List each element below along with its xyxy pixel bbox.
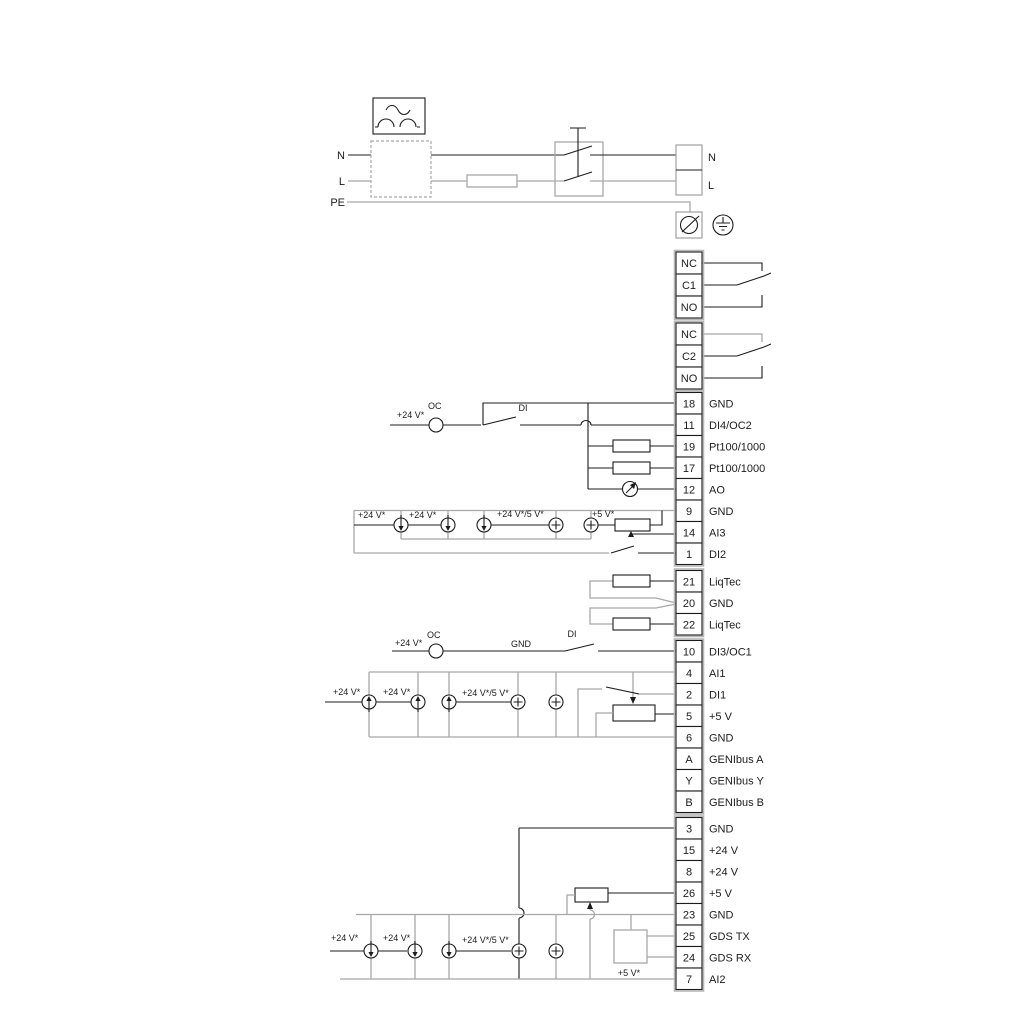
terminal-strip-c: 10DI3/OC14AI12DI15+5 V6GNDAGENIbus AYGEN… xyxy=(675,639,765,814)
terminal-pin: 19 xyxy=(683,441,695,453)
terminal-pin: 21 xyxy=(683,576,695,588)
ac-supply-icon xyxy=(373,98,425,134)
terminal-strip-d: 3GND15+24 V8+24 V26+5 V23GND25GDS TX24GD… xyxy=(675,816,752,991)
terminal-label: DI4/OC2 xyxy=(709,420,752,432)
potentiometer xyxy=(613,705,655,721)
oc-source-icon xyxy=(429,644,443,658)
annotation-24v: +24 V* xyxy=(333,687,361,697)
resistor-liqtec-2 xyxy=(613,618,650,630)
relay-cell-label: C2 xyxy=(682,351,696,363)
terminal-pin: 12 xyxy=(683,484,695,496)
relay2-no-wire xyxy=(702,366,762,378)
relay-block: NCC2NO xyxy=(675,322,704,391)
relay1-contact xyxy=(702,273,771,285)
label-n-left: N xyxy=(337,150,345,162)
label-pe-left: PE xyxy=(330,197,345,209)
terminal-pin: 25 xyxy=(683,931,695,943)
terminal-pin: 5 xyxy=(686,711,692,723)
annotation-24v: +24 V* xyxy=(409,510,437,520)
terminal-pin: 9 xyxy=(686,506,692,518)
terminal-label: DI2 xyxy=(709,549,726,561)
terminal-pin: 22 xyxy=(683,619,695,631)
relay2-contact xyxy=(702,344,771,356)
terminal-label: +24 V xyxy=(709,845,739,857)
relay1-no-wire xyxy=(702,295,762,307)
terminal-label: AI3 xyxy=(709,527,726,539)
terminal-pin: 26 xyxy=(683,888,695,900)
pot-wiper-drop xyxy=(590,908,595,979)
pot-to-gnd xyxy=(596,713,613,737)
di2-switch xyxy=(611,546,676,553)
annotation-24v: +24 V* xyxy=(395,638,423,648)
terminal-label: +5 V xyxy=(709,888,733,900)
terminal-pin: 24 xyxy=(683,952,695,964)
relay-wires xyxy=(702,263,771,378)
motif-d-verticals xyxy=(371,915,556,980)
relay-cell-label: NO xyxy=(681,373,698,385)
section-d-wires: +5 V* +24 V* +24 V* +24 V*/5 V* xyxy=(330,828,676,979)
terminal-strip-b: 21LiqTec20GND22LiqTec xyxy=(675,569,742,637)
terminal-label: GENIbus Y xyxy=(709,775,764,787)
section-b-wires xyxy=(590,575,676,630)
annotation-di: DI xyxy=(568,629,577,639)
di4-wire xyxy=(520,421,676,426)
oc-source-icon xyxy=(429,418,443,432)
terminal-pin: 15 xyxy=(683,845,695,857)
annotation-24v: +24 V* xyxy=(397,410,425,420)
terminal-label: +5 V xyxy=(709,711,733,723)
relay-cell-label: C1 xyxy=(682,280,696,292)
section-c-wires: +24 V* OC GND DI +24 V* +24 V* +24 V*/5 … xyxy=(325,629,676,737)
annotation-di: DI xyxy=(519,403,528,413)
terminal-pin: 11 xyxy=(683,420,694,432)
pot-left-leg xyxy=(567,895,575,915)
label-l-right: L xyxy=(708,180,714,192)
terminal-pin: Y xyxy=(685,775,693,787)
relay-cell-label: NC xyxy=(681,329,697,341)
annotation-5v: +5 V* xyxy=(618,968,641,978)
resistor-pt100-1 xyxy=(613,440,650,452)
terminal-pin: 4 xyxy=(686,668,692,680)
terminal-pin: 23 xyxy=(683,909,695,921)
relay1-nc-wire xyxy=(702,263,762,271)
terminal-pin: 17 xyxy=(683,463,695,475)
resistor-liqtec-1 xyxy=(613,575,650,587)
label-l-left: L xyxy=(339,176,345,188)
pot-to-gnd xyxy=(650,511,662,526)
di3-switch xyxy=(565,644,676,651)
terminal-label: AO xyxy=(709,484,725,496)
terminal-label: +24 V xyxy=(709,866,739,878)
terminal-pin: 10 xyxy=(683,646,695,658)
terminal-pin: A xyxy=(685,754,693,766)
annotation-oc: OC xyxy=(428,401,442,411)
terminal-pin: 7 xyxy=(686,974,692,986)
terminal-label: Pt100/1000 xyxy=(709,463,765,475)
terminal-label: LiqTec xyxy=(709,619,741,631)
annotation-gnd: GND xyxy=(511,639,532,649)
potentiometer xyxy=(615,519,650,531)
annotation-24v-5v: +24 V*/5 V* xyxy=(462,688,509,698)
relay-block: NCC1NO xyxy=(675,251,704,320)
terminal-pin: 2 xyxy=(686,689,692,701)
terminal-label: LiqTec xyxy=(709,576,741,588)
terminal-label: GDS TX xyxy=(709,931,750,943)
motif-c-verticals xyxy=(369,672,556,737)
terminal-label: AI1 xyxy=(709,668,726,680)
relay2-nc-wire xyxy=(702,334,762,342)
wiring-diagram-page: N L PE N L +24 xyxy=(0,0,1024,1024)
terminal-pin: 18 xyxy=(683,398,695,410)
annotation-24v-5v: +24 V*/5 V* xyxy=(462,935,509,945)
di1-switch-blade xyxy=(606,687,639,694)
terminal-pin: 20 xyxy=(683,598,695,610)
di4-switch-blade xyxy=(483,417,516,425)
potentiometer xyxy=(575,888,608,902)
annotation-24v: +24 V* xyxy=(358,510,386,520)
terminal-strip-a: 18GND11DI4/OC219Pt100/100017Pt100/100012… xyxy=(675,391,766,566)
terminal-label: GENIbus A xyxy=(709,754,764,766)
terminal-pin: 3 xyxy=(686,823,692,835)
gds-sensor-box xyxy=(614,930,647,963)
terminal-label: GENIbus B xyxy=(709,797,764,809)
terminal-label: GND xyxy=(709,598,734,610)
wire-pe xyxy=(347,202,690,212)
wiper-arrow xyxy=(630,697,636,704)
terminal-pin: 6 xyxy=(686,732,692,744)
terminal-label: GND xyxy=(709,909,734,921)
terminal-label: AI2 xyxy=(709,974,726,986)
wiring-diagram: N L PE N L +24 xyxy=(0,0,1024,1024)
resistor-pt100-2 xyxy=(613,462,650,474)
terminal-pin: 1 xyxy=(686,549,692,561)
relay-cell-label: NC xyxy=(681,258,697,270)
terminal-pin: B xyxy=(685,797,692,809)
annotation-24v-5v: +24 V*/5 V* xyxy=(497,509,544,519)
terminal-label: DI3/OC1 xyxy=(709,646,752,658)
terminal-label: GND xyxy=(709,732,734,744)
terminal-label: Pt100/1000 xyxy=(709,441,765,453)
annotation-5v: +5 V* xyxy=(592,509,615,519)
annotation-24v: +24 V* xyxy=(383,687,411,697)
switch-contact-n xyxy=(557,146,676,155)
pot-wiper-wire xyxy=(631,532,676,534)
annotation-oc: OC xyxy=(427,630,441,640)
terminal-label: GDS RX xyxy=(709,952,752,964)
terminal-label: GND xyxy=(709,823,734,835)
terminal-strips: NCC1NONCC2NO18GND11DI4/OC219Pt100/100017… xyxy=(675,251,766,992)
relay-cell-label: NO xyxy=(681,302,698,314)
terminal-label: GND xyxy=(709,398,734,410)
fuse xyxy=(467,175,517,187)
supply-section: N L PE N L xyxy=(330,98,733,238)
terminal-label: GND xyxy=(709,506,734,518)
wiper-arrow xyxy=(587,902,593,909)
terminal-label: DI1 xyxy=(709,689,726,701)
section-a-wires: +24 V* OC DI +24 V* +24 V* +24 V*/5 V* +… xyxy=(354,401,676,553)
terminal-pin: 8 xyxy=(686,866,692,878)
terminal-pin: 14 xyxy=(683,527,695,539)
label-n-right: N xyxy=(708,152,716,164)
annotation-24v: +24 V* xyxy=(331,933,359,943)
annotation-24v: +24 V* xyxy=(383,933,411,943)
filter-box xyxy=(371,141,431,197)
